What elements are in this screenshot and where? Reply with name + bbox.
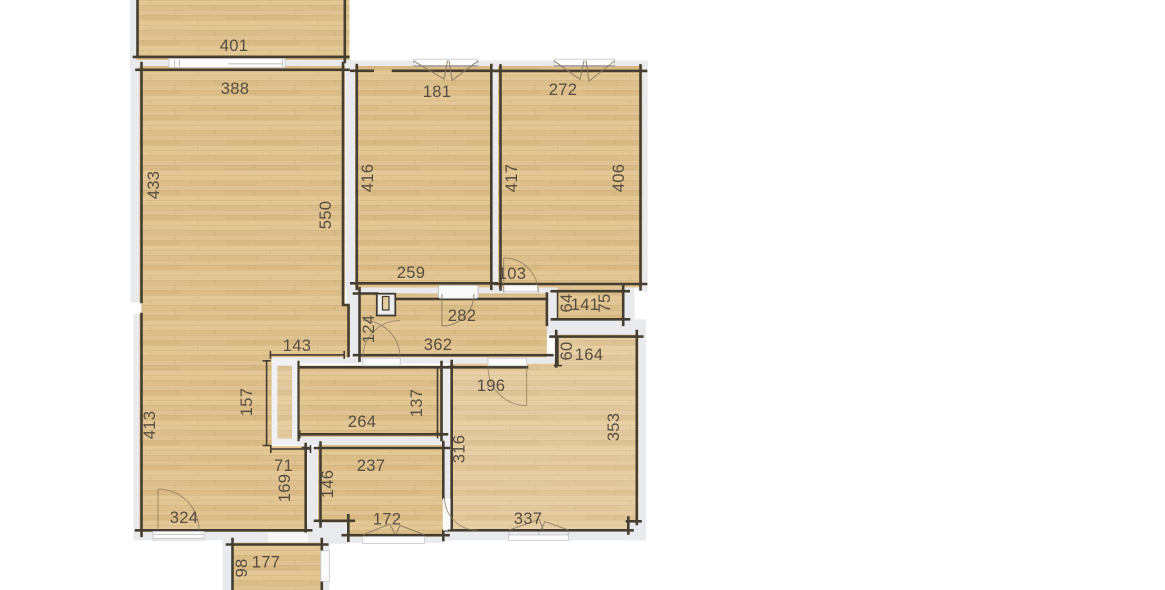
svg-text:324: 324 [170,508,199,527]
svg-text:75: 75 [595,293,614,312]
svg-text:416: 416 [358,164,377,193]
svg-text:124: 124 [359,315,378,344]
svg-text:362: 362 [424,335,453,354]
svg-text:60: 60 [557,341,576,360]
svg-text:64: 64 [557,293,576,312]
svg-text:353: 353 [604,413,623,442]
svg-text:103: 103 [498,264,527,283]
svg-text:406: 406 [609,164,628,193]
svg-text:143: 143 [283,336,312,355]
svg-text:98: 98 [232,558,251,577]
svg-text:181: 181 [423,82,452,101]
svg-text:237: 237 [357,456,386,475]
svg-text:264: 264 [348,412,377,431]
svg-text:413: 413 [140,411,159,440]
svg-text:282: 282 [448,306,477,325]
svg-text:259: 259 [397,263,426,282]
svg-text:550: 550 [316,201,335,230]
svg-text:196: 196 [477,376,506,395]
svg-text:417: 417 [502,164,521,193]
svg-text:401: 401 [220,36,249,55]
svg-text:272: 272 [549,80,578,99]
svg-text:137: 137 [407,389,426,418]
svg-text:433: 433 [144,171,163,200]
svg-text:388: 388 [221,79,250,98]
svg-text:157: 157 [237,388,256,417]
svg-text:169: 169 [275,474,294,503]
svg-text:337: 337 [514,509,543,528]
svg-text:316: 316 [450,435,469,464]
svg-text:146: 146 [318,470,337,499]
svg-text:172: 172 [373,510,402,529]
svg-text:71: 71 [274,456,293,475]
svg-text:177: 177 [252,553,281,572]
svg-text:164: 164 [575,345,604,364]
